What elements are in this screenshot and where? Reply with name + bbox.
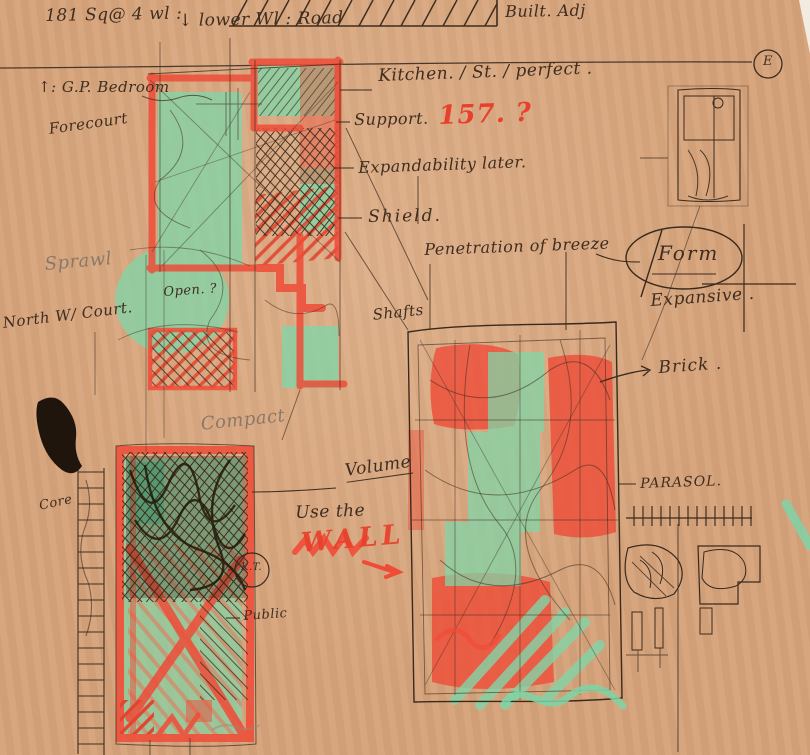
note-east: E [763, 55, 773, 69]
note-built-adj: Built. Adj [505, 3, 586, 21]
note-shield: Shield. [368, 208, 442, 227]
note-gp-bedroom: ↑: G.P. Bedroom [38, 80, 170, 96]
note-parasol: PARASOL. [640, 474, 722, 492]
sketch-page: 181 Sq@ 4 wl : ↓ lower Wl : Road Built. … [0, 0, 810, 755]
thumbnail-plan-sketch [640, 86, 748, 360]
note-level-road: ↓ lower Wl : Road [178, 10, 344, 31]
note-form: Form [658, 243, 719, 264]
note-support-number: 157. ? [438, 100, 533, 131]
paper-edge [799, 0, 810, 54]
note-support: Support. [354, 111, 429, 129]
note-kt: K.T. [241, 563, 262, 574]
ruled-lines [0, 62, 752, 68]
parasol-sketch [625, 506, 760, 752]
ink-blob [36, 397, 82, 473]
plan-lower-left-sketch [78, 444, 256, 755]
note-public: Public [243, 607, 288, 624]
note-use-the: Use the [295, 503, 365, 523]
note-area: 181 Sq@ 4 wl : [45, 6, 182, 26]
